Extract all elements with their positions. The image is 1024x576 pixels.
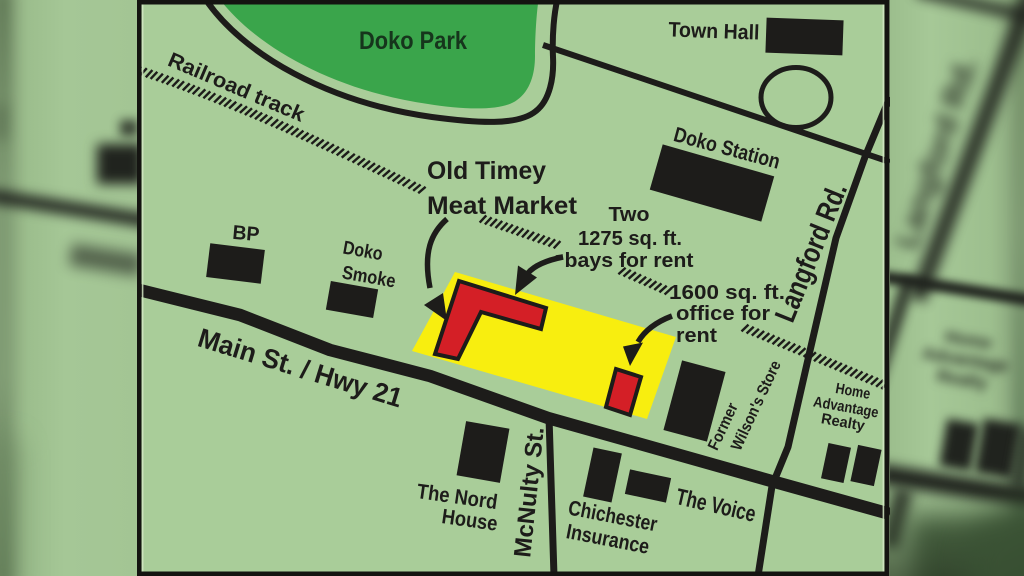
svg-text:Meat Market: Meat Market xyxy=(427,192,578,220)
svg-text:office for: office for xyxy=(676,303,770,325)
svg-text:Town Hall: Town Hall xyxy=(668,18,760,44)
svg-text:1275 sq. ft.: 1275 sq. ft. xyxy=(578,228,682,250)
svg-text:Doko Park: Doko Park xyxy=(359,27,467,55)
svg-text:BP: BP xyxy=(232,222,261,246)
svg-text:1600 sq. ft.: 1600 sq. ft. xyxy=(669,282,785,304)
svg-text:rent: rent xyxy=(676,325,717,347)
svg-text:Old Timey: Old Timey xyxy=(427,157,546,185)
svg-text:bays for rent: bays for rent xyxy=(565,250,694,272)
svg-text:Two: Two xyxy=(609,204,650,226)
